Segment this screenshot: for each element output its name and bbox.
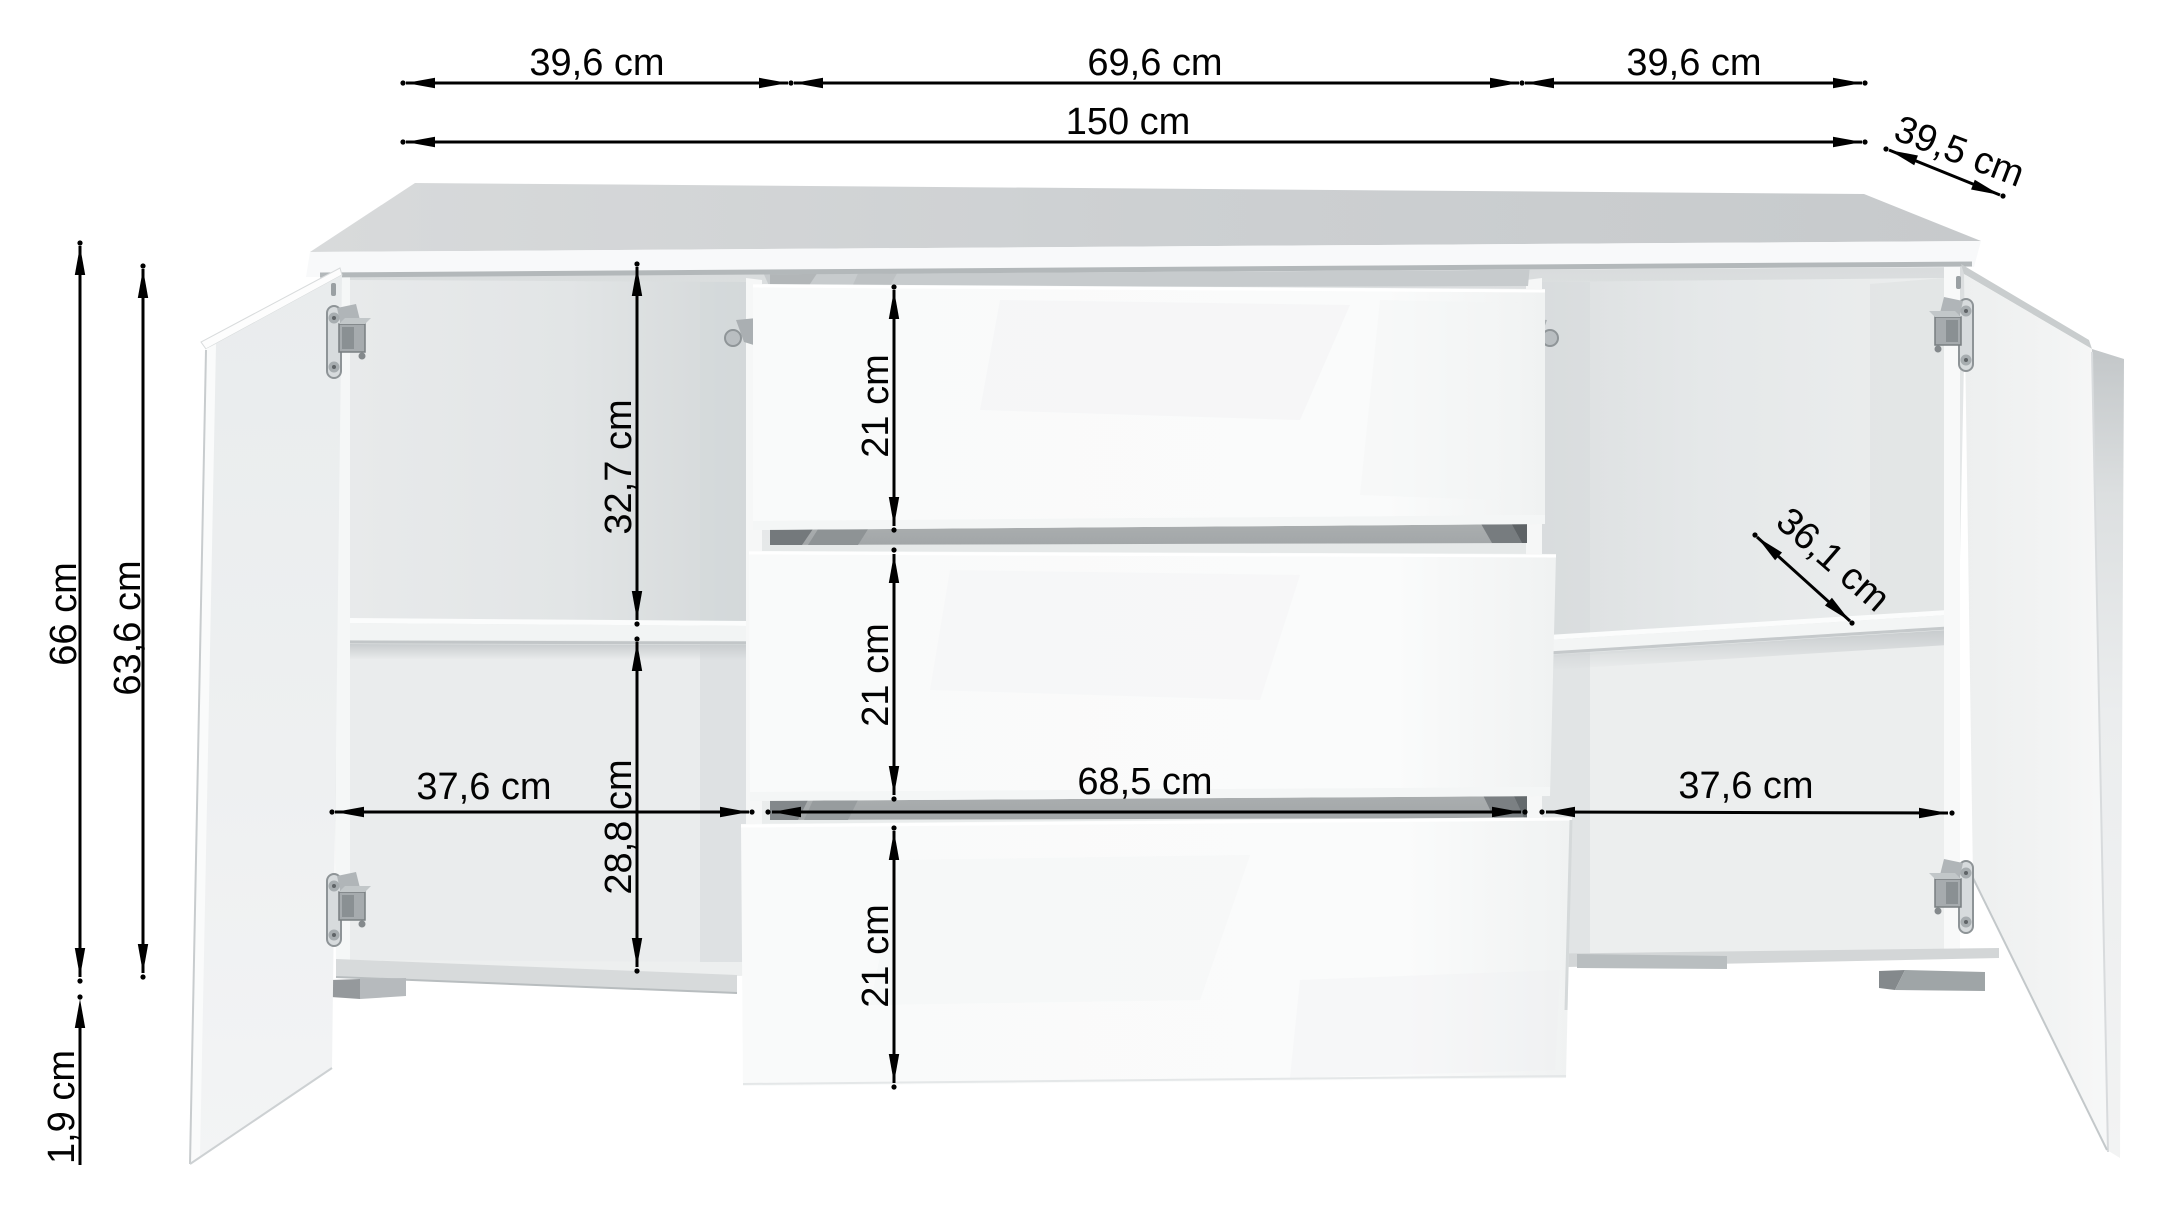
- svg-text:69,6 cm: 69,6 cm: [1087, 42, 1222, 84]
- svg-text:66 cm: 66 cm: [43, 562, 85, 665]
- svg-text:63,6 cm: 63,6 cm: [107, 560, 149, 695]
- svg-text:39,6 cm: 39,6 cm: [529, 42, 664, 84]
- svg-text:21 cm: 21 cm: [855, 904, 897, 1007]
- svg-text:37,6 cm: 37,6 cm: [416, 766, 551, 808]
- svg-text:32,7 cm: 32,7 cm: [598, 399, 640, 534]
- svg-text:150 cm: 150 cm: [1066, 101, 1191, 143]
- svg-text:39,6 cm: 39,6 cm: [1626, 42, 1761, 84]
- svg-text:1,9 cm: 1,9 cm: [41, 1050, 83, 1164]
- svg-text:37,6 cm: 37,6 cm: [1678, 765, 1813, 807]
- svg-text:21 cm: 21 cm: [855, 354, 897, 457]
- svg-text:21 cm: 21 cm: [855, 623, 897, 726]
- svg-text:28,8 cm: 28,8 cm: [598, 759, 640, 894]
- svg-text:68,5 cm: 68,5 cm: [1077, 761, 1212, 803]
